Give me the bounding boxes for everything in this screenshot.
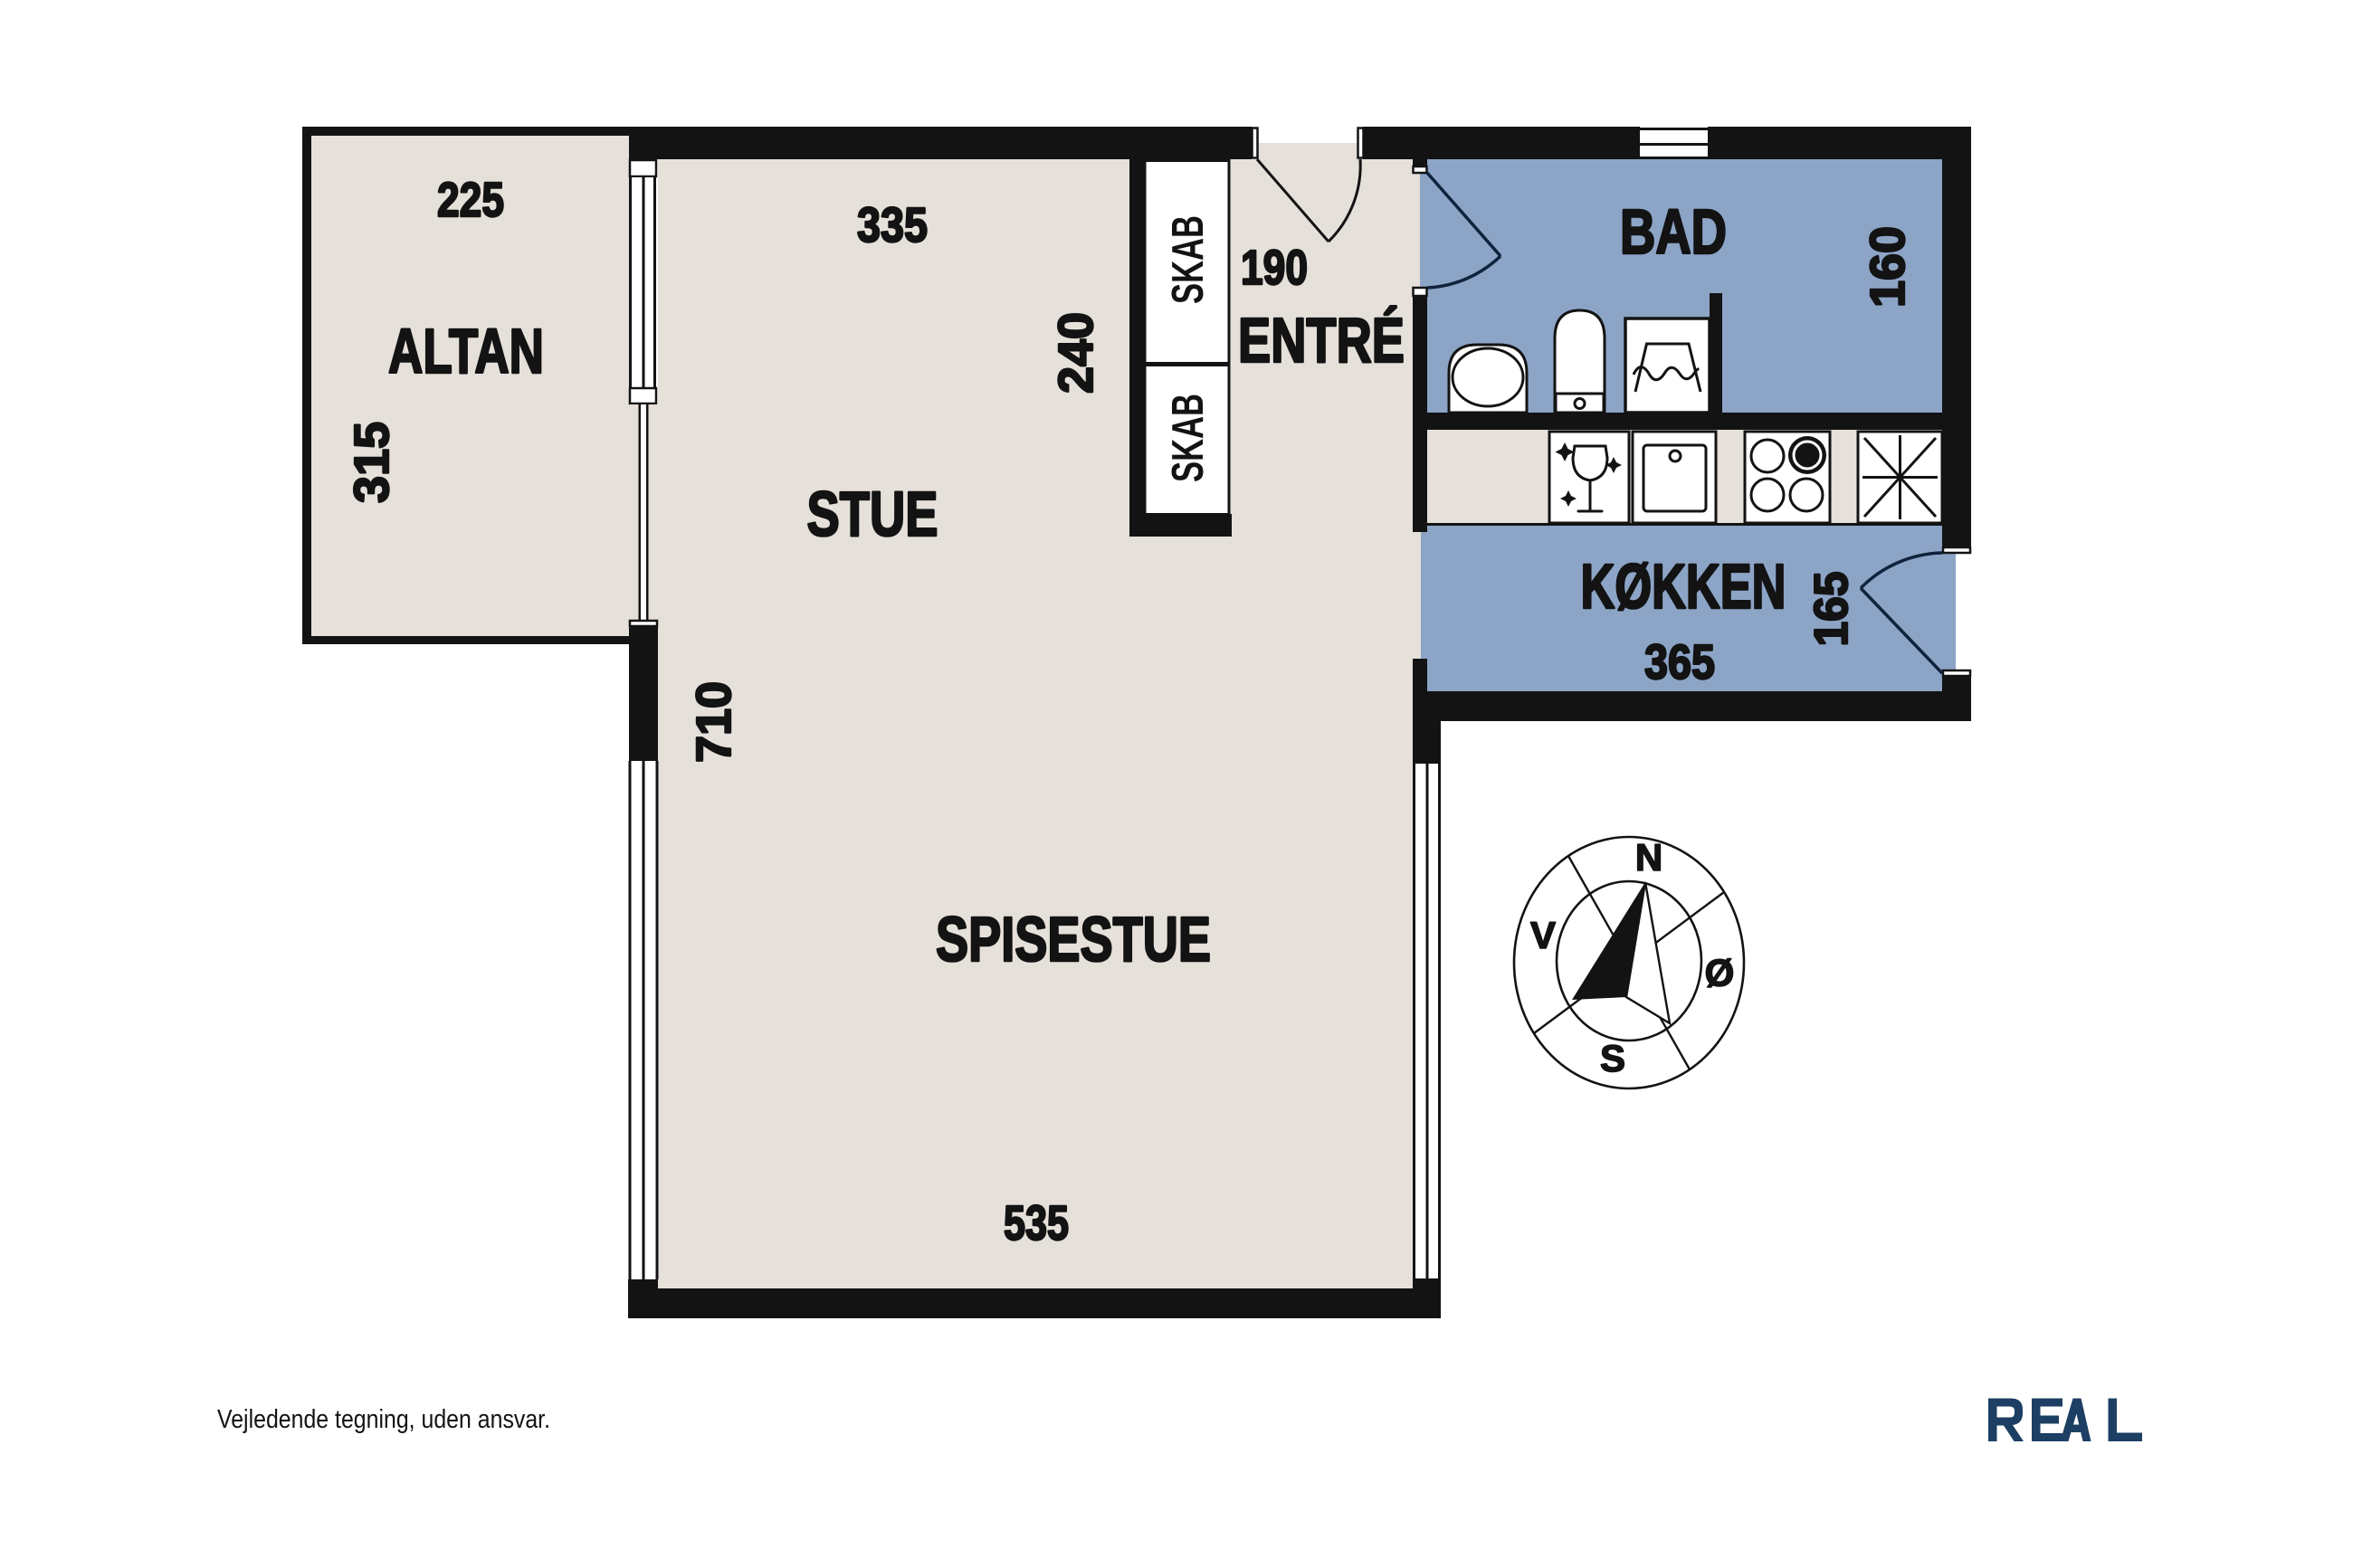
- svg-text:BAD: BAD: [1620, 196, 1727, 267]
- svg-text:335: 335: [857, 198, 928, 252]
- svg-text:S: S: [1600, 1037, 1625, 1079]
- svg-text:315: 315: [345, 422, 399, 503]
- svg-text:SKAB: SKAB: [1164, 394, 1213, 482]
- svg-text:ENTRÉ: ENTRÉ: [1238, 305, 1405, 375]
- svg-text:ALTAN: ALTAN: [388, 316, 544, 386]
- svg-text:365: 365: [1644, 635, 1715, 689]
- svg-text:KØKKEN: KØKKEN: [1581, 551, 1786, 622]
- svg-text:165: 165: [1805, 572, 1858, 647]
- svg-text:190: 190: [1241, 241, 1308, 295]
- svg-text:SKAB: SKAB: [1164, 215, 1213, 304]
- svg-text:SPISESTUE: SPISESTUE: [936, 904, 1211, 974]
- svg-text:225: 225: [437, 173, 504, 227]
- svg-text:N: N: [1635, 836, 1662, 879]
- svg-text:Ø: Ø: [1705, 952, 1735, 994]
- svg-text:Vejledende tegning, uden ansva: Vejledende tegning, uden ansvar.: [217, 1405, 550, 1434]
- svg-text:STUE: STUE: [807, 479, 938, 549]
- svg-text:710: 710: [687, 681, 741, 763]
- svg-text:160: 160: [1861, 226, 1915, 308]
- svg-text:V: V: [1530, 914, 1556, 956]
- svg-text:535: 535: [1004, 1196, 1069, 1250]
- svg-text:240: 240: [1049, 312, 1103, 394]
